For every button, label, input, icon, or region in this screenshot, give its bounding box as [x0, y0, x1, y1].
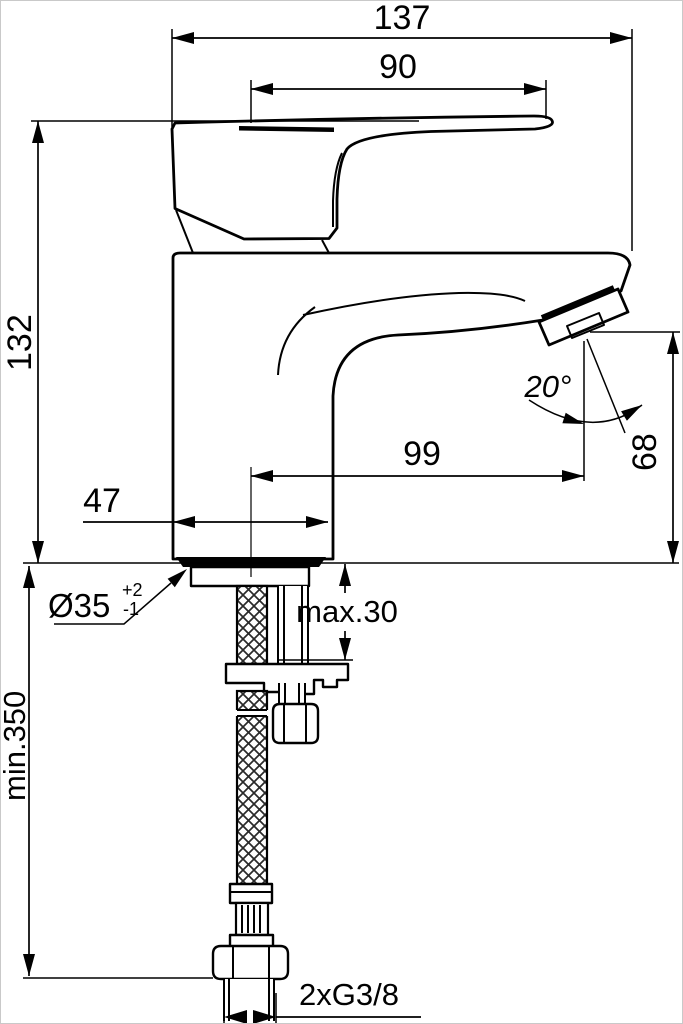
faucet	[172, 116, 630, 567]
arrowhead	[23, 954, 35, 976]
dim-total-width: 137	[374, 1, 431, 37]
arrowhead	[251, 83, 273, 95]
corrugated-section	[236, 903, 268, 935]
arrowhead	[562, 470, 584, 482]
arrowhead	[168, 569, 187, 587]
angle-slant-line	[587, 339, 625, 433]
arrowhead	[339, 564, 351, 586]
supply-hose-lower	[237, 691, 267, 885]
rod-fill	[279, 683, 305, 705]
arrowhead	[339, 638, 351, 660]
base-flange	[191, 567, 309, 586]
hex-nut-upper	[273, 704, 318, 743]
dim-spout-reach: 99	[403, 435, 441, 473]
arrowhead	[667, 332, 679, 354]
technical-drawing-page: 137 90 132 47 99 20°	[0, 0, 683, 1024]
under-deck-assembly	[191, 567, 348, 1021]
hex-nut-lower	[213, 946, 288, 979]
arrowhead	[667, 541, 679, 563]
hose-ferrule	[230, 884, 272, 903]
arrowhead	[610, 32, 632, 44]
arrowhead	[562, 413, 584, 424]
faucet-dimension-drawing: 137 90 132 47 99 20°	[1, 1, 683, 1024]
arrowhead	[32, 541, 44, 563]
arrowhead	[524, 83, 546, 95]
dim-hole-diameter: Ø35	[48, 587, 110, 624]
arrowhead	[172, 32, 194, 44]
handle-skirt-right	[322, 240, 329, 253]
dim-outlet-height: 68	[626, 433, 664, 471]
handle-lever	[172, 116, 553, 239]
faucet-body-outline	[173, 253, 630, 559]
dim-body-depth: 47	[83, 482, 121, 520]
dim-spout-angle: 20°	[524, 369, 572, 404]
supply-hose-upper	[237, 586, 267, 664]
dim-max-deck: max.30	[296, 594, 398, 629]
arrowhead	[621, 405, 642, 421]
dim-handle-length: 90	[379, 48, 417, 86]
dim-hole-tol-minus: -1	[123, 599, 139, 619]
arrowhead	[23, 566, 35, 588]
dim-min-hose: min.350	[1, 691, 32, 801]
dim-hole-tol-plus: +2	[122, 580, 143, 600]
dim-height-above-deck: 132	[1, 314, 39, 371]
arrowhead	[32, 121, 44, 143]
dim-thread: 2xG3/8	[299, 977, 399, 1012]
